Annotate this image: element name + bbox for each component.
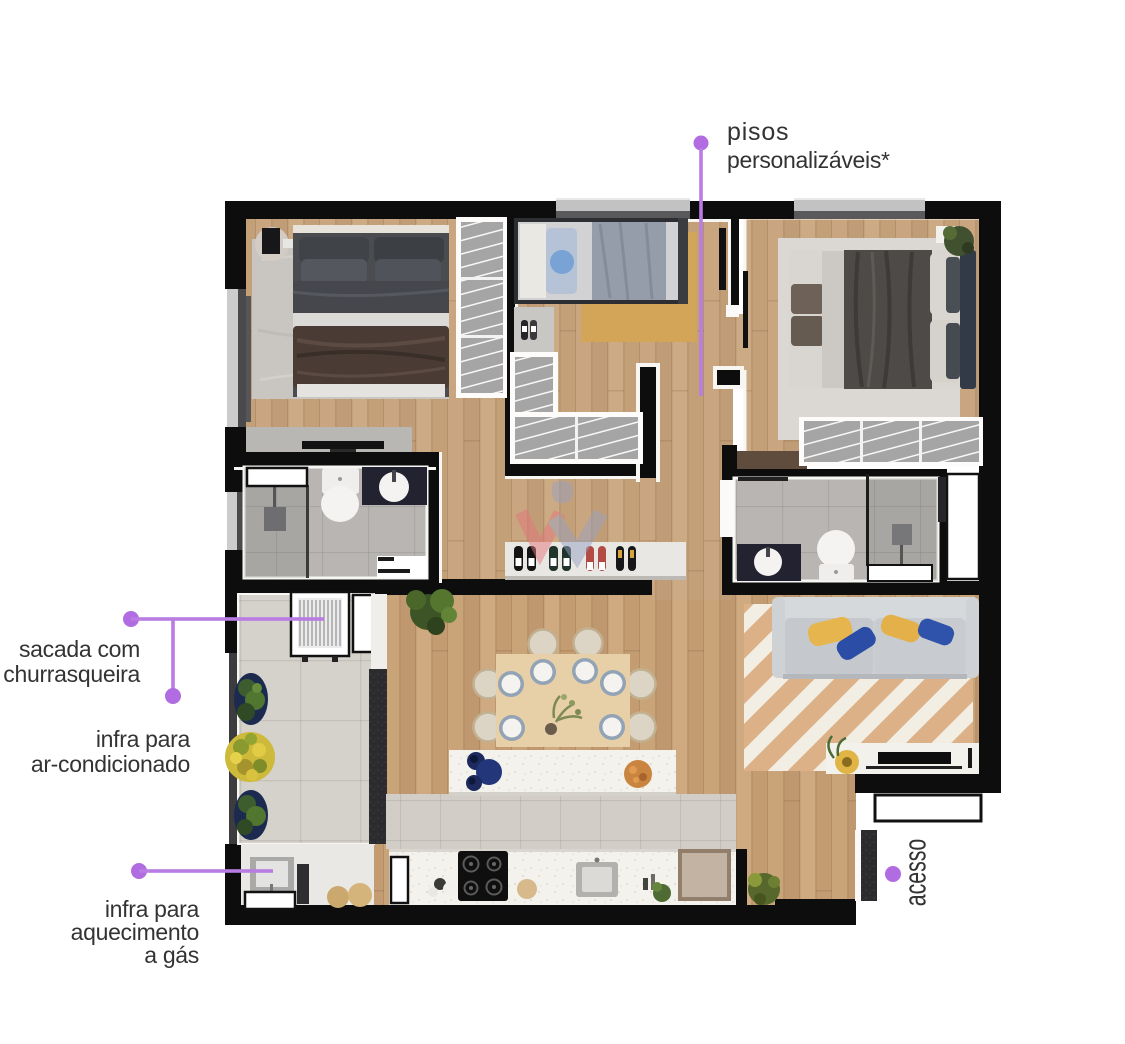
svg-text:churrasqueira: churrasqueira [3,661,140,687]
svg-text:sacada com: sacada com [19,636,140,662]
svg-text:infra para: infra para [96,726,191,752]
svg-text:ar-condicionado: ar-condicionado [31,751,190,777]
svg-text:acesso: acesso [898,839,933,907]
svg-text:pisos: pisos [727,118,789,146]
svg-text:a gás: a gás [144,942,199,968]
svg-text:personalizáveis*: personalizáveis* [727,147,890,173]
